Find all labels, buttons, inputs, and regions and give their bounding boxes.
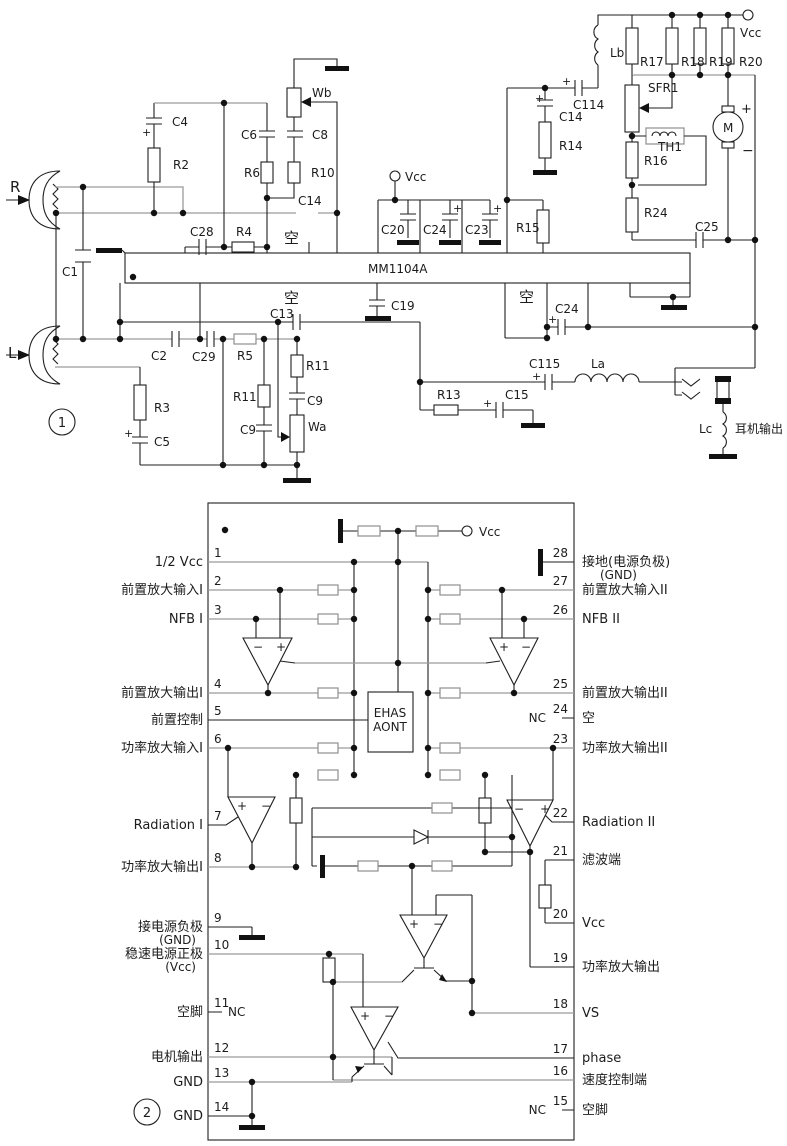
schematic-label: 8 bbox=[214, 851, 222, 865]
schematic-label: NFB I bbox=[169, 612, 203, 627]
schematic-label: NFB II bbox=[582, 612, 620, 627]
schematic-label: EHAS bbox=[374, 706, 406, 720]
schematic-label: TH1 bbox=[657, 140, 682, 154]
schematic-label: C29 bbox=[192, 350, 216, 364]
schematic-label: R10 bbox=[311, 166, 335, 180]
schematic-label: R5 bbox=[237, 349, 253, 363]
schematic-label: C19 bbox=[391, 299, 415, 313]
schematic-label: − bbox=[261, 799, 271, 813]
schematic-label: 9 bbox=[214, 911, 222, 925]
schematic-label: 16 bbox=[553, 1064, 568, 1078]
schematic-label: + bbox=[548, 313, 557, 326]
schematic-label: 空脚 bbox=[582, 1102, 608, 1118]
schematic-label: + bbox=[124, 427, 133, 440]
schematic-label: AONT bbox=[373, 720, 407, 734]
schematic-label: Vcc bbox=[405, 170, 426, 184]
schematic-label: C1 bbox=[62, 265, 78, 279]
schematic-label: − bbox=[433, 917, 443, 931]
schematic-label: (Vcc) bbox=[165, 960, 196, 974]
schematic-label: 功率放大输出I bbox=[121, 859, 203, 875]
schematic-label: 5 bbox=[214, 704, 222, 718]
schematic-label: C114 bbox=[573, 98, 604, 112]
schematic-label: C23 bbox=[465, 223, 489, 237]
schematic-label: 速度控制端 bbox=[582, 1072, 647, 1088]
ground-bar bbox=[96, 248, 122, 253]
schematic-label: + bbox=[360, 1009, 370, 1023]
schematic-label: + bbox=[453, 202, 462, 215]
schematic-label: 空脚 bbox=[177, 1004, 203, 1020]
schematic-label: 电机输出 bbox=[151, 1049, 203, 1065]
schematic-label: 4 bbox=[214, 677, 222, 691]
schematic-label: 11 bbox=[214, 996, 229, 1010]
schematic-label: La bbox=[591, 357, 605, 371]
schematic-label: 前置放大输入II bbox=[582, 582, 668, 598]
chip-label: MM1104A bbox=[368, 262, 428, 276]
schematic-label: NC bbox=[529, 1103, 546, 1117]
schematic-label: phase bbox=[582, 1051, 621, 1066]
circuit-schematic: 1 MM1104A bbox=[0, 0, 787, 1146]
schematic-label: R4 bbox=[236, 225, 252, 239]
schematic-label: R3 bbox=[154, 401, 170, 415]
schematic-label: 7 bbox=[214, 809, 222, 823]
schematic-label: + bbox=[142, 126, 151, 139]
schematic-label: 空 bbox=[284, 289, 299, 307]
schematic-label: R2 bbox=[173, 158, 189, 172]
schematic-label: Vcc bbox=[740, 26, 761, 40]
schematic-label: (GND) bbox=[159, 933, 196, 947]
schematic-label: C5 bbox=[154, 435, 170, 449]
schematic-label: 6 bbox=[214, 732, 222, 746]
schematic-label: 前置放大输入I bbox=[121, 582, 203, 598]
schematic-label: 空 bbox=[519, 288, 534, 306]
schematic-label: (GND) bbox=[600, 568, 637, 582]
wa-potentiometer bbox=[290, 415, 304, 452]
schematic-label: R17 bbox=[640, 55, 664, 69]
schematic-label: 22 bbox=[553, 806, 568, 820]
schematic-label: 28 bbox=[553, 546, 568, 560]
schematic-label: NC bbox=[228, 1005, 245, 1019]
schematic-label: + bbox=[562, 75, 571, 88]
vcc-decoupling bbox=[378, 171, 501, 253]
schematic-label: + bbox=[237, 799, 247, 813]
schematic-label: R14 bbox=[559, 139, 583, 153]
schematic-label: C28 bbox=[190, 225, 214, 239]
schematic-label: C14 bbox=[559, 110, 583, 124]
schematic-label: + bbox=[532, 370, 541, 383]
schematic-label: C14 bbox=[298, 194, 322, 208]
schematic-label: C115 bbox=[529, 357, 560, 371]
schematic-label: 1 bbox=[214, 546, 222, 560]
schematic-label: 耳机输出 bbox=[735, 421, 783, 436]
schematic-label: R16 bbox=[644, 154, 668, 168]
schematic-label: 空 bbox=[582, 711, 595, 726]
schematic-label: 前置放大输出I bbox=[121, 685, 203, 701]
schematic-label: 25 bbox=[553, 677, 568, 691]
schematic-label: Radiation I bbox=[134, 818, 203, 833]
schematic-label: 功率放大输出 bbox=[582, 959, 660, 975]
schematic-label: 15 bbox=[553, 1094, 568, 1108]
schematic-label: R11 bbox=[306, 359, 330, 373]
schematic-label: C24 bbox=[423, 223, 447, 237]
schematic-label: Radiation II bbox=[582, 815, 655, 830]
schematic-label: NC bbox=[529, 711, 546, 725]
schematic-label: + bbox=[535, 92, 544, 105]
schematic-label: C25 bbox=[695, 220, 719, 234]
schematic-label: 前置放大输出II bbox=[582, 685, 668, 701]
schematic-label: Vcc bbox=[582, 916, 605, 931]
schematic-label: C24 bbox=[555, 302, 579, 316]
schematic-label: C20 bbox=[381, 223, 405, 237]
schematic-label: 12 bbox=[214, 1041, 229, 1055]
schematic-label: C2 bbox=[151, 349, 167, 363]
schematic-label: R15 bbox=[516, 221, 540, 235]
schematic-label: 27 bbox=[553, 574, 568, 588]
schematic-label: 18 bbox=[553, 997, 568, 1011]
schematic-label: + bbox=[493, 202, 502, 215]
schematic-label: 功率放大输入I bbox=[121, 740, 203, 756]
schematic-label: C15 bbox=[505, 388, 529, 402]
schematic-label: C4 bbox=[172, 115, 188, 129]
schematic-label: R6 bbox=[244, 166, 260, 180]
schematic-label: SFR1 bbox=[648, 81, 679, 95]
schematic-label: 10 bbox=[214, 938, 229, 952]
schematic-label: R11 bbox=[233, 390, 257, 404]
schematic-label: R20 bbox=[739, 55, 763, 69]
schematic-label: Vcc bbox=[479, 525, 500, 539]
schematic-label: GND bbox=[173, 1109, 203, 1124]
schematic-label: 滤波端 bbox=[582, 853, 621, 868]
schematic-label: R18 bbox=[681, 55, 705, 69]
schematic-label: − bbox=[521, 640, 531, 654]
schematic-label: L bbox=[8, 344, 17, 362]
figure1-application-circuit: 1 MM1104A bbox=[6, 10, 783, 483]
figure2-badge: 2 bbox=[134, 1099, 160, 1125]
schematic-label: 13 bbox=[214, 1066, 229, 1080]
schematic-label: R24 bbox=[644, 206, 668, 220]
figure1-labels: RLC1C4R2C6R6C8R10WbC28R4C14空空C2C29R5C13R… bbox=[8, 26, 783, 449]
schematic-label: GND bbox=[173, 1075, 203, 1090]
ic-chip-mm1104a: MM1104A bbox=[125, 253, 690, 283]
schematic-label: 功率放大输出II bbox=[582, 740, 668, 756]
schematic-label: 17 bbox=[553, 1042, 568, 1056]
schematic-label: R19 bbox=[709, 55, 733, 69]
svg-text:2: 2 bbox=[143, 1106, 151, 1121]
schematic-label: 23 bbox=[553, 732, 568, 746]
headphone-jack bbox=[682, 376, 737, 459]
schematic-label: + bbox=[483, 397, 492, 410]
schematic-label: C13 bbox=[270, 307, 294, 321]
schematic-page: 1 MM1104A bbox=[0, 0, 787, 1146]
schematic-label: + bbox=[499, 640, 509, 654]
schematic-label: + bbox=[276, 640, 286, 654]
schematic-label: 前置控制 bbox=[151, 712, 203, 728]
schematic-label: 21 bbox=[553, 844, 568, 858]
schematic-label: R13 bbox=[437, 388, 461, 402]
schematic-label: 1/2 Vcc bbox=[155, 555, 203, 570]
schematic-label: VS bbox=[582, 1006, 599, 1021]
schematic-label: Wb bbox=[312, 86, 331, 100]
schematic-label: + bbox=[741, 102, 752, 117]
schematic-label: − bbox=[253, 640, 263, 654]
schematic-label: 24 bbox=[553, 702, 568, 716]
figure1-badge: 1 bbox=[49, 409, 75, 435]
schematic-label: C9 bbox=[307, 394, 323, 408]
motor bbox=[713, 75, 743, 240]
schematic-label: 26 bbox=[553, 603, 568, 617]
schematic-label: C9 bbox=[240, 423, 256, 437]
schematic-label: 2 bbox=[214, 574, 222, 588]
schematic-label: + bbox=[540, 802, 550, 816]
svg-text:1: 1 bbox=[58, 416, 66, 431]
schematic-label: + bbox=[409, 917, 419, 931]
schematic-label: 19 bbox=[553, 951, 568, 965]
schematic-label: 14 bbox=[214, 1100, 229, 1114]
schematic-label: R bbox=[10, 178, 20, 196]
schematic-label: 3 bbox=[214, 603, 222, 617]
schematic-label: 空 bbox=[284, 229, 299, 247]
schematic-label: C8 bbox=[312, 128, 328, 142]
schematic-label: − bbox=[514, 802, 524, 816]
schematic-label: Lb bbox=[610, 46, 624, 60]
schematic-label: − bbox=[742, 143, 754, 159]
schematic-label: M bbox=[723, 121, 733, 135]
schematic-label: 20 bbox=[553, 907, 568, 921]
figure2-internal-diagram: 2 bbox=[121, 503, 670, 1140]
schematic-label: Wa bbox=[308, 420, 326, 434]
schematic-label: − bbox=[384, 1009, 394, 1023]
schematic-label: C6 bbox=[241, 128, 257, 142]
schematic-label: Lc bbox=[699, 422, 712, 436]
